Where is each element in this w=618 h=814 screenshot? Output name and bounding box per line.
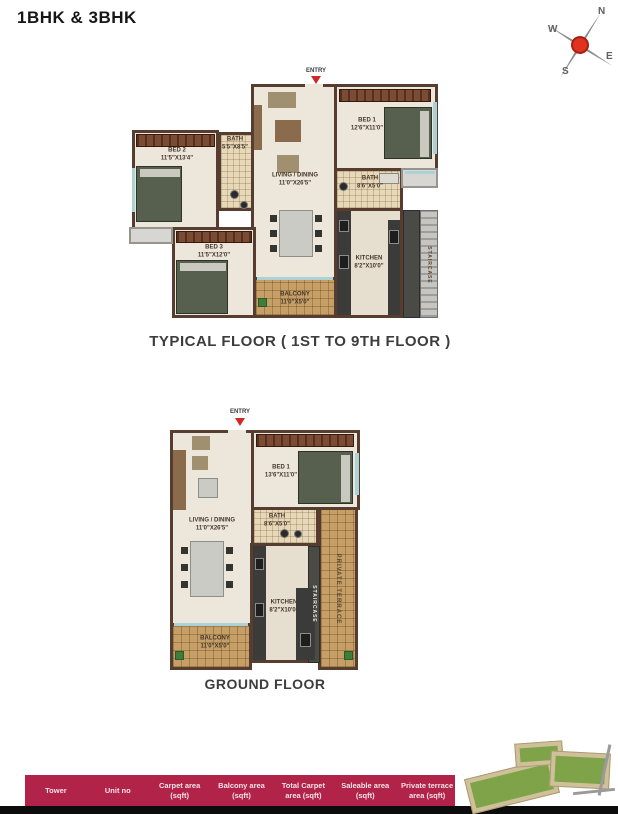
site-road-2 [573, 788, 615, 795]
sofa-typical-1 [268, 92, 296, 108]
entry-door-gap [228, 430, 246, 434]
room-label-bed1: BED 1 12'6"X11'0" [351, 118, 383, 133]
room-name: BATH [222, 137, 248, 145]
chair [270, 245, 277, 252]
entry-door-gap [305, 84, 323, 88]
coffee-table-ground [198, 478, 218, 498]
pillows [180, 263, 226, 271]
plant-icon [175, 651, 184, 660]
chair [226, 547, 233, 554]
window-bed1-typical [433, 102, 437, 154]
compass-rose: N W E S [540, 2, 618, 86]
room-label-balcony: BALCONY 11'0"X5'0" [200, 636, 230, 651]
north-label: N [598, 6, 605, 17]
room-name: LIVING / DINING [272, 173, 318, 181]
sink-appliance [339, 220, 349, 232]
room-label-living: LIVING / DINING 11'0"X26'5" [272, 173, 318, 188]
pillows [420, 111, 429, 157]
room-name: BALCONY [280, 292, 310, 300]
room-label-bed2: BED 2 11'5"X13'4" [161, 148, 193, 163]
room-label-living: LIVING / DINING 11'0"X26'5" [189, 518, 235, 533]
room-dim: 8'6"X5'0" [357, 183, 383, 191]
room-dim: 13'6"X11'0" [265, 472, 297, 480]
typical-floor-caption: TYPICAL FLOOR ( 1ST TO 9TH FLOOR ) [130, 333, 470, 350]
page-title: 1BHK & 3BHK [17, 8, 137, 28]
balcony-sliding-door [174, 623, 248, 626]
room-name: KITCHEN [269, 600, 298, 608]
room-dim: 5'5"X8'5" [222, 144, 248, 152]
room-label-balcony: BALCONY 11'0"X5'0" [280, 292, 310, 307]
fridge-appliance [300, 633, 311, 647]
bed-furniture-bed1-typical [384, 107, 432, 159]
room-label-staircase: STAIRCASE [426, 246, 432, 284]
room-name: BATH [264, 514, 290, 522]
window-bed1-ground [355, 453, 359, 495]
room-dim: 8'6"X5'0" [264, 521, 290, 529]
room-label-kitchen: KITCHEN 8'2"X10'0" [354, 256, 383, 271]
armchair-ground-1 [192, 436, 210, 450]
toilet-fixture [230, 190, 239, 199]
room-label-bed1: BED 1 13'6"X11'0" [265, 465, 297, 480]
chair [315, 245, 322, 252]
room-name: BED 3 [198, 245, 230, 253]
room-dim: 11'5"X13'4" [161, 155, 193, 163]
entry-arrow-icon [235, 418, 245, 426]
armchair-ground-2 [192, 456, 208, 470]
col-unit-no: Unit no [87, 786, 149, 796]
armchair-typical [277, 155, 299, 173]
window-ledge-right [405, 171, 435, 174]
room-name: BED 2 [161, 148, 193, 156]
room-label-bed3: BED 3 11'5"X12'0" [198, 245, 230, 260]
chair [270, 230, 277, 237]
ground-floor-plan: ENTRY [168, 408, 363, 673]
chair [226, 581, 233, 588]
window-bed2-typical [132, 168, 135, 212]
room-dim: 11'5"X12'0" [198, 252, 230, 260]
stair-core-typical [403, 210, 420, 318]
wardrobe-bed2-typical [136, 134, 215, 147]
col-tower: Tower [25, 786, 87, 796]
entry-label: ENTRY [230, 409, 250, 415]
room-label-bath: BATH 8'6"X5'0" [264, 514, 290, 529]
table-header: Tower Unit no Carpet area (sqft) Balcony… [25, 775, 458, 806]
courtyard [470, 764, 554, 809]
room-name: BALCONY [200, 636, 230, 644]
chair [270, 215, 277, 222]
ground-floor-caption: GROUND FLOOR [165, 676, 365, 692]
chair [181, 581, 188, 588]
tv-unit-typical [254, 105, 262, 150]
typical-floor-plan: ENTRY [127, 70, 447, 328]
room-label-bath2: BATH 5'5"X8'5" [222, 137, 248, 152]
room-name: LIVING / DINING [189, 518, 235, 526]
dining-table-ground [190, 541, 224, 597]
col-saleable-area: Saleable area (sqft) [334, 781, 396, 801]
utility-ledge-left [129, 227, 173, 244]
chair [315, 215, 322, 222]
plant-icon [344, 651, 353, 660]
stove-appliance [339, 255, 349, 269]
room-dim: 11'0"X26'5" [272, 180, 318, 188]
site-building-1 [464, 758, 560, 814]
south-label: S [562, 66, 569, 77]
table-row-divider [0, 806, 618, 814]
dining-table-typical [279, 210, 313, 257]
toilet-fixture [280, 529, 289, 538]
chair [315, 230, 322, 237]
room-dim: 11'0"X5'0" [200, 643, 230, 651]
col-carpet-area: Carpet area (sqft) [149, 781, 211, 801]
room-dim: 11'0"X26'5" [189, 525, 235, 533]
room-dim: 12'6"X11'0" [351, 125, 383, 133]
chair [181, 564, 188, 571]
chair [226, 564, 233, 571]
sofa-typical-2 [275, 120, 301, 142]
room-name: BATH [357, 176, 383, 184]
room-label-terrace: PRIVATE TERRACE [335, 554, 341, 625]
entry-label: ENTRY [306, 68, 326, 74]
entry-arrow-icon [311, 76, 321, 84]
wardrobe-bed1-ground [256, 434, 354, 447]
bed-furniture-bed1-ground [298, 451, 353, 504]
room-label-bath1: BATH 8'6"X5'0" [357, 176, 383, 191]
bed-furniture-bed3-typical [176, 260, 228, 314]
col-total-carpet: Total Carpet area (sqft) [272, 781, 334, 801]
room-dim: 8'2"X10'0" [269, 607, 298, 615]
fridge-appliance [389, 230, 399, 244]
sofa-ground [173, 450, 186, 510]
room-label-staircase: STAIRCASE [311, 585, 317, 623]
compass-center-dot [568, 33, 593, 58]
west-label: W [548, 24, 557, 35]
brochure-page: 1BHK & 3BHK N W E S ENTRY [0, 0, 618, 814]
bed-furniture-bed2-typical [136, 166, 182, 222]
sink-appliance [255, 558, 264, 570]
wardrobe-bed1-typical [339, 89, 431, 102]
chair [181, 547, 188, 554]
pillows [341, 455, 350, 502]
col-balcony-area: Balcony area (sqft) [211, 781, 273, 801]
east-label: E [606, 51, 613, 62]
toilet-fixture [339, 182, 348, 191]
wardrobe-bed3-typical [176, 231, 252, 243]
stove-appliance [255, 603, 264, 617]
pillows [140, 169, 180, 177]
room-name: BED 1 [351, 118, 383, 126]
room-name: BED 1 [265, 465, 297, 473]
site-plan-thumbnail [455, 738, 618, 806]
room-dim: 8'2"X10'0" [354, 263, 383, 271]
plant-icon [258, 298, 267, 307]
room-name: KITCHEN [354, 256, 383, 264]
room-label-kitchen: KITCHEN 8'2"X10'0" [269, 600, 298, 615]
balcony-sliding-door [257, 277, 333, 280]
col-private-terrace: Private terrace area (sqft) [396, 781, 458, 801]
basin-fixture [294, 530, 302, 538]
room-dim: 11'0"X5'0" [280, 299, 310, 307]
courtyard [554, 756, 605, 785]
basin-fixture [240, 201, 248, 209]
